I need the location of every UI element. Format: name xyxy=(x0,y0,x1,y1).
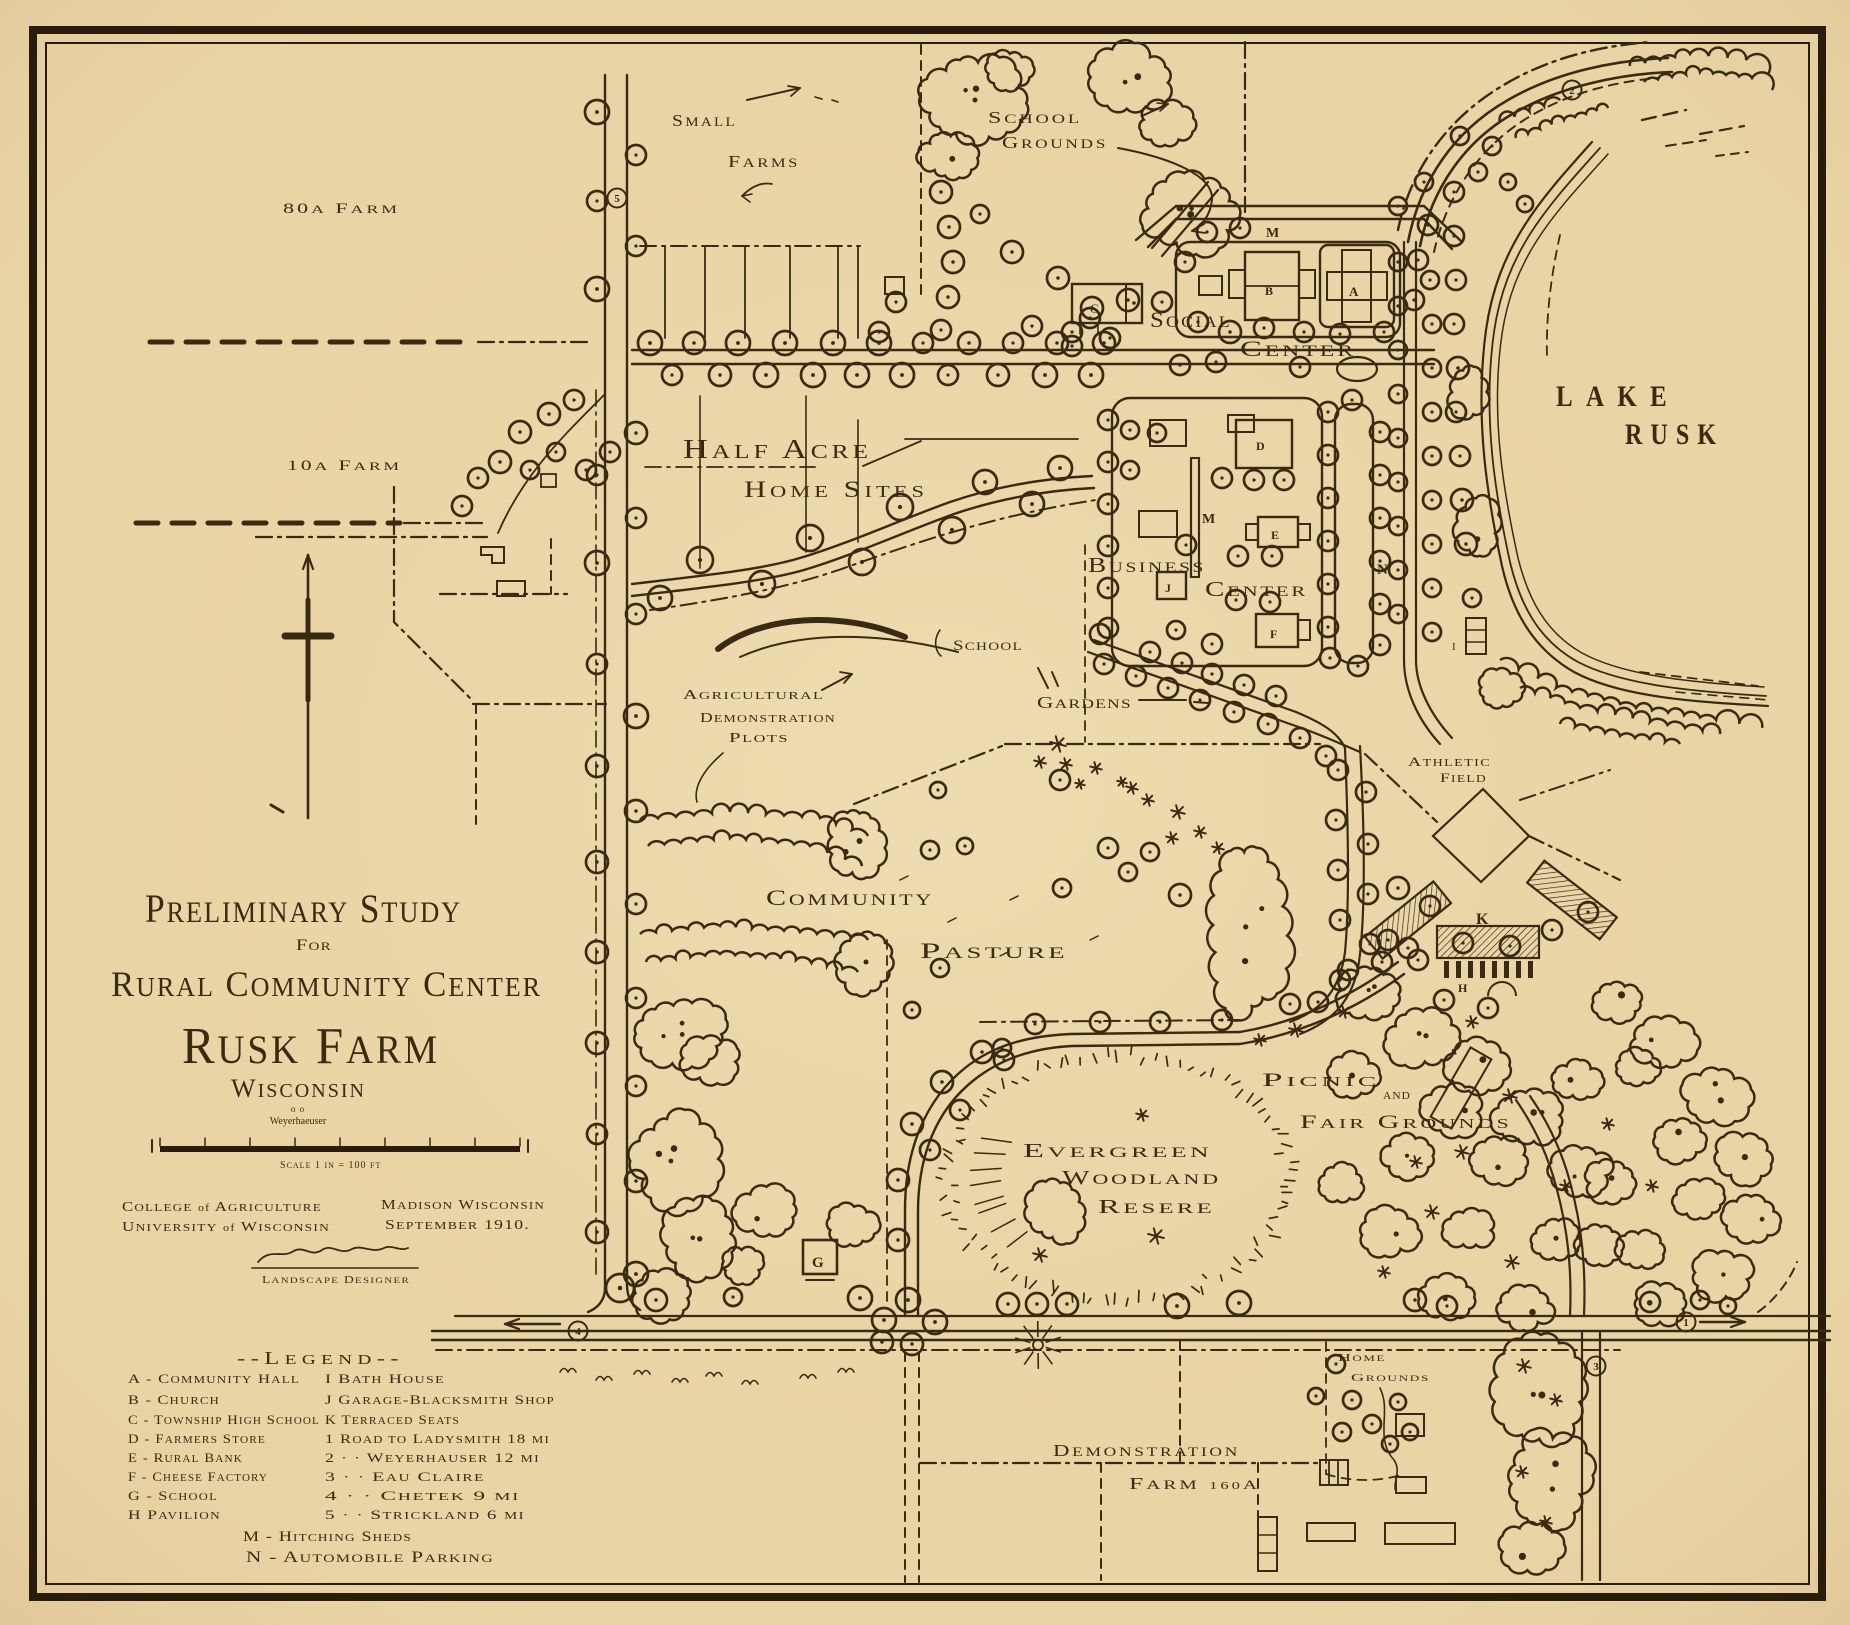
svg-text:M: M xyxy=(1266,226,1280,241)
svg-text:MADISON WISCONSIN: MADISON WISCONSIN xyxy=(381,1198,545,1213)
svg-text:N - AUTOMOBILE PARKING: N - AUTOMOBILE PARKING xyxy=(246,1549,494,1566)
svg-text:B: B xyxy=(1265,284,1273,298)
svg-text:GROUNDS: GROUNDS xyxy=(1002,133,1108,152)
svg-text:Weyerhaeuser: Weyerhaeuser xyxy=(270,1116,327,1127)
svg-text:2: 2 xyxy=(1569,85,1575,97)
svg-text:GROUNDS: GROUNDS xyxy=(1351,1372,1430,1384)
svg-text:G: G xyxy=(812,1255,824,1271)
svg-text:DEMONSTRATION: DEMONSTRATION xyxy=(1053,1441,1240,1460)
svg-text:UNIVERSITY of WISCONSIN: UNIVERSITY of WISCONSIN xyxy=(122,1220,330,1235)
svg-text:4: 4 xyxy=(575,1326,581,1338)
svg-text:FOR: FOR xyxy=(296,937,332,954)
svg-text:LAKE: LAKE xyxy=(1556,380,1680,413)
svg-text:I: I xyxy=(1452,641,1456,653)
svg-text:FARMS: FARMS xyxy=(728,152,800,171)
svg-text:PLOTS: PLOTS xyxy=(729,731,789,746)
svg-text:E: E xyxy=(1271,528,1279,542)
svg-text:A: A xyxy=(1349,284,1359,299)
svg-text:D: D xyxy=(1256,439,1265,453)
svg-text:10A FARM: 10A FARM xyxy=(287,458,402,474)
svg-text:RUSK FARM: RUSK FARM xyxy=(182,1018,440,1075)
svg-text:80A FARM: 80A FARM xyxy=(283,201,400,217)
svg-text:SEPTEMBER 1910.: SEPTEMBER 1910. xyxy=(385,1218,530,1233)
svg-text:1: 1 xyxy=(1683,1317,1689,1329)
svg-text:AND: AND xyxy=(1383,1091,1411,1102)
svg-text:AGRICULTURAL: AGRICULTURAL xyxy=(683,688,824,703)
svg-text:M - HITCHING SHEDS: M - HITCHING SHEDS xyxy=(243,1529,412,1545)
svg-text:SCHOOL: SCHOOL xyxy=(988,108,1082,127)
svg-text:SMALL: SMALL xyxy=(672,111,737,130)
svg-text:COLLEGE of AGRICULTURE: COLLEGE of AGRICULTURE xyxy=(122,1200,322,1215)
svg-text:F: F xyxy=(1270,627,1277,641)
svg-text:H: H xyxy=(1458,981,1468,995)
svg-text:K: K xyxy=(1476,911,1489,928)
svg-text:5: 5 xyxy=(614,193,620,205)
svg-text:RUSK: RUSK xyxy=(1625,418,1724,451)
svg-text:LANDSCAPE DESIGNER: LANDSCAPE DESIGNER xyxy=(262,1275,410,1286)
svg-text:M: M xyxy=(1202,512,1216,527)
svg-text:o o: o o xyxy=(291,1104,305,1114)
svg-text:SCHOOL: SCHOOL xyxy=(953,638,1023,654)
svg-text:DEMONSTRATION: DEMONSTRATION xyxy=(700,711,836,726)
svg-text:SCALE 1 IN = 100 FT: SCALE 1 IN = 100 FT xyxy=(280,1160,381,1171)
svg-text:J: J xyxy=(1165,581,1171,595)
svg-text:3: 3 xyxy=(1593,1361,1599,1373)
